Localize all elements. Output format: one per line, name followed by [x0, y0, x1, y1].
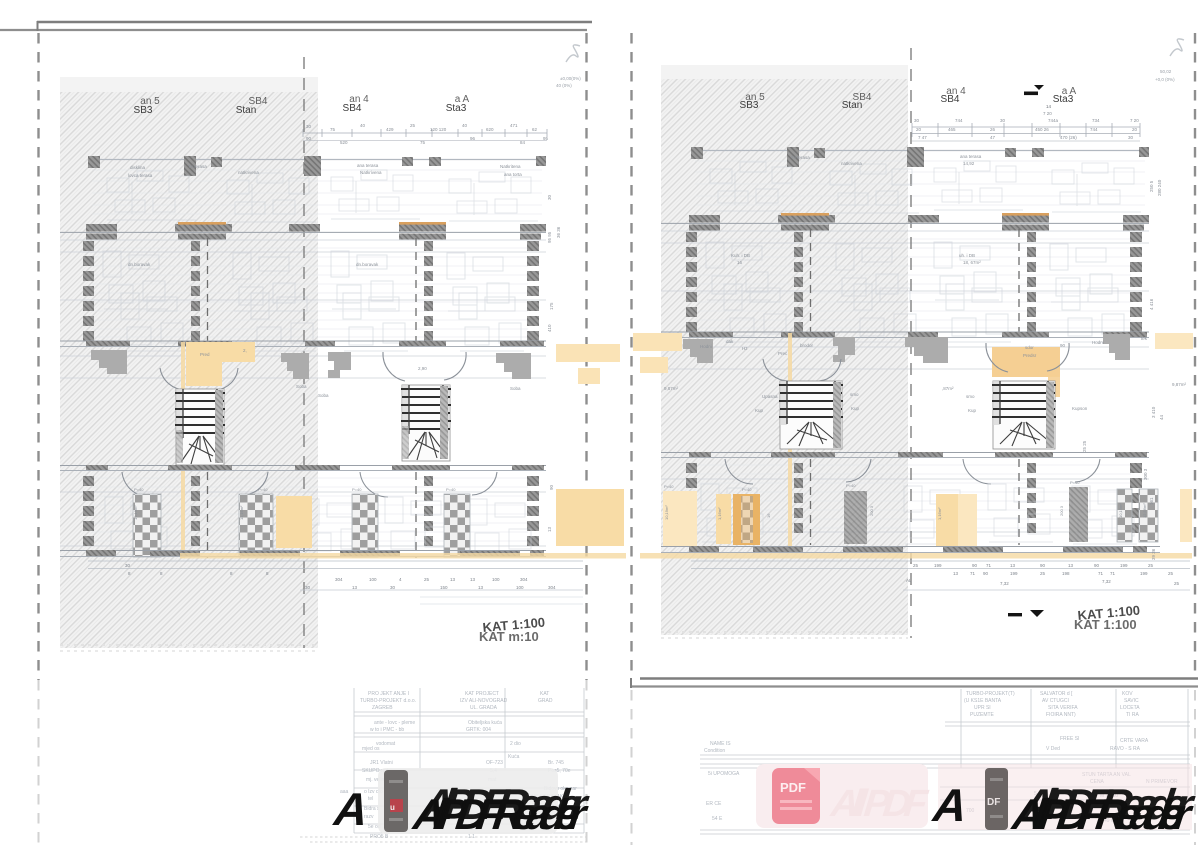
svg-text:200 3: 200 3: [1059, 505, 1064, 516]
svg-text:54 E: 54 E: [712, 816, 723, 822]
svg-text:A: A: [331, 783, 371, 835]
svg-text:25: 25: [424, 577, 430, 582]
svg-text:Natkritena: Natkritena: [500, 164, 521, 169]
svg-text:V Ded: V Ded: [1046, 746, 1060, 752]
svg-text:GRAD: GRAD: [538, 698, 553, 704]
svg-text:620: 620: [486, 127, 494, 132]
svg-text:All PDF Reader: All PDF Reader: [419, 781, 592, 829]
svg-text:natkrivena: natkrivena: [238, 170, 259, 175]
svg-text:95 95: 95 95: [547, 231, 552, 243]
svg-text:Condition: Condition: [704, 748, 725, 754]
svg-text:62: 62: [532, 127, 538, 132]
svg-text:NAME IS: NAME IS: [710, 741, 731, 747]
svg-text:71: 71: [1098, 571, 1104, 576]
svg-text:25: 25: [410, 123, 416, 128]
svg-text:20: 20: [916, 127, 922, 132]
svg-text:Kupson: Kupson: [1072, 406, 1088, 411]
svg-text:(U KS1E BANTA: (U KS1E BANTA: [964, 698, 1002, 704]
svg-text:Soba: Soba: [510, 386, 521, 391]
svg-text:120 120: 120 120: [430, 127, 447, 132]
svg-text:50,02: 50,02: [1160, 69, 1172, 74]
svg-text:dn.boravak: dn.boravak: [128, 262, 151, 267]
svg-text:429: 429: [386, 127, 394, 132]
svg-text:90: 90: [972, 563, 978, 568]
svg-text:Tv terasa: Tv terasa: [791, 155, 810, 160]
svg-text:PRO5 B: PRO5 B: [370, 834, 389, 840]
svg-text:Upasna: Upasna: [762, 394, 778, 399]
svg-text:dn.boravak: dn.boravak: [356, 262, 379, 267]
svg-text:450 26: 450 26: [1035, 127, 1049, 132]
svg-text:25: 25: [913, 563, 919, 568]
svg-text:sdor: sdor: [1025, 345, 1034, 350]
svg-text:71: 71: [1110, 571, 1116, 576]
svg-text:Kup: Kup: [851, 406, 860, 411]
svg-text:disklina: disklina: [130, 165, 146, 170]
svg-text:95: 95: [543, 136, 549, 141]
svg-text:75: 75: [420, 140, 426, 145]
svg-text:44: 44: [1159, 414, 1164, 420]
svg-text:25: 25: [1174, 581, 1180, 586]
svg-text:ana terasa: ana terasa: [960, 154, 982, 159]
svg-text:SAVIC: SAVIC: [1124, 698, 1139, 704]
svg-text:20: 20: [1132, 127, 1138, 132]
svg-text:an 4: an 4: [349, 94, 369, 105]
svg-text:an 5: an 5: [745, 92, 765, 103]
svg-text:KAT: KAT: [540, 691, 549, 697]
svg-text:100: 100: [516, 585, 524, 590]
svg-text:150: 150: [440, 585, 448, 590]
svg-text:A: A: [930, 779, 970, 831]
svg-text:P=40: P=40: [1070, 480, 1080, 485]
svg-text:lovca terasa: lovca terasa: [128, 173, 153, 178]
svg-text:Prec: Prec: [778, 351, 788, 356]
svg-text:AV CTUGCI: AV CTUGCI: [1042, 698, 1069, 704]
svg-text:84: 84: [520, 140, 526, 145]
svg-text:16: 16: [766, 513, 771, 518]
svg-text:FREE SI: FREE SI: [1060, 736, 1079, 742]
svg-text:PUZEMTE: PUZEMTE: [970, 712, 995, 718]
svg-text:40: 40: [462, 123, 468, 128]
svg-text:13: 13: [450, 577, 456, 582]
svg-text:KAT m:10: KAT m:10: [479, 629, 539, 644]
svg-text:RAVO - S RA: RAVO - S RA: [1110, 746, 1141, 752]
svg-text:u: u: [390, 803, 395, 812]
svg-text:40 (0%): 40 (0%): [556, 83, 572, 88]
svg-text:30: 30: [914, 118, 920, 123]
svg-text:Hodni: Hodni: [700, 344, 712, 349]
svg-text:PRO JEKT ANJE I: PRO JEKT ANJE I: [368, 691, 409, 697]
svg-text:520: 520: [340, 140, 348, 145]
svg-text:71: 71: [986, 563, 992, 568]
svg-text:744: 744: [955, 118, 963, 123]
svg-text:w to i PMC - bb: w to i PMC - bb: [370, 727, 404, 733]
svg-text:mjed os: mjed os: [362, 746, 380, 752]
svg-text:P=40: P=40: [664, 484, 674, 489]
svg-text:25: 25: [1148, 563, 1154, 568]
svg-text:GRTK: 004: GRTK: 004: [466, 727, 491, 733]
svg-text:7 20: 7 20: [1043, 111, 1052, 116]
svg-text:304: 304: [335, 577, 343, 582]
svg-text:tek: tek: [1141, 336, 1148, 341]
svg-text:30: 30: [306, 124, 312, 129]
svg-text:5i UPOMOGA: 5i UPOMOGA: [708, 771, 740, 777]
svg-text:P=40: P=40: [134, 487, 144, 492]
svg-text:7 47: 7 47: [918, 135, 927, 140]
svg-text:36 36: 36 36: [556, 226, 561, 238]
svg-text:Kuća: Kuća: [508, 754, 520, 760]
svg-text:Pred: Pred: [200, 352, 210, 357]
svg-text:14: 14: [1046, 104, 1052, 109]
svg-text:P=40: P=40: [446, 487, 456, 492]
svg-text:KAT PROJECT: KAT PROJECT: [465, 691, 499, 697]
svg-text:TURBO-PROJEKT(T): TURBO-PROJEKT(T): [966, 691, 1015, 697]
svg-text:P=40: P=40: [742, 487, 752, 492]
svg-text:brodor: brodor: [800, 343, 814, 348]
svg-text:744a: 744a: [1048, 118, 1059, 123]
svg-text:199: 199: [934, 563, 942, 568]
svg-text:PDF: PDF: [780, 780, 806, 795]
svg-text:KAT 1:100: KAT 1:100: [1074, 617, 1137, 632]
svg-text:9,87m²: 9,87m²: [664, 386, 679, 391]
svg-text:90: 90: [1094, 563, 1100, 568]
svg-text:UL. GRADA: UL. GRADA: [470, 705, 498, 711]
svg-text:175: 175: [549, 302, 554, 310]
svg-text:11,16m²: 11,16m²: [239, 505, 244, 520]
svg-text:13: 13: [547, 526, 552, 532]
svg-text:uh. i DB: uh. i DB: [959, 253, 975, 258]
svg-text:199: 199: [1140, 571, 1148, 576]
svg-text:280 240: 280 240: [1157, 179, 1162, 196]
svg-text:1,16m²: 1,16m²: [937, 507, 942, 520]
svg-text:13: 13: [1010, 563, 1016, 568]
svg-text:Soba: Soba: [296, 384, 307, 389]
svg-text:ante - lovc - pleme: ante - lovc - pleme: [374, 720, 415, 726]
svg-text:TI RA: TI RA: [1126, 712, 1139, 718]
svg-text:100: 100: [369, 577, 377, 582]
svg-text:90: 90: [306, 136, 312, 141]
svg-text:ana torta: ana torta: [504, 172, 522, 177]
svg-text:ER CE: ER CE: [706, 801, 722, 807]
svg-text:30: 30: [547, 194, 552, 200]
svg-text:30: 30: [390, 585, 396, 590]
svg-text:18, 67m²: 18, 67m²: [963, 260, 981, 265]
svg-text:12,56m²: 12,56m²: [1142, 503, 1147, 518]
svg-text:199: 199: [1010, 571, 1018, 576]
svg-text:200 3: 200 3: [869, 505, 874, 516]
svg-text:744: 744: [1090, 127, 1098, 132]
svg-text:75: 75: [330, 127, 336, 132]
svg-text:UPR SI: UPR SI: [974, 705, 991, 711]
svg-text:734: 734: [1092, 118, 1100, 123]
svg-text:Soba: Soba: [318, 393, 329, 398]
svg-text:,87m²: ,87m²: [942, 386, 954, 391]
svg-text:a A: a A: [455, 94, 470, 105]
svg-text:+0,0 (0%): +0,0 (0%): [1155, 77, 1175, 82]
svg-text:SITA VERIFA: SITA VERIFA: [1048, 705, 1078, 711]
svg-text:198: 198: [1062, 571, 1070, 576]
svg-text:Natkrivena: Natkrivena: [360, 170, 382, 175]
svg-text:natkrivena: natkrivena: [841, 161, 862, 166]
svg-text:TURBO-PROJEKT d.o.o.: TURBO-PROJEKT d.o.o.: [360, 698, 416, 704]
svg-text:471: 471: [510, 123, 518, 128]
svg-text:13: 13: [352, 585, 358, 590]
svg-text:30: 30: [1000, 118, 1006, 123]
svg-text:470 (26): 470 (26): [1060, 135, 1077, 140]
svg-text:IZV ALI-NOVOGRAD: IZV ALI-NOVOGRAD: [460, 698, 508, 704]
svg-text:30: 30: [305, 585, 311, 590]
svg-text:Kuh. i DB: Kuh. i DB: [731, 253, 750, 258]
svg-text:P=40: P=40: [352, 487, 362, 492]
svg-text:13: 13: [953, 571, 959, 576]
svg-text:7 20: 7 20: [1130, 118, 1139, 123]
svg-text:smo: smo: [850, 392, 859, 397]
svg-text:10,19m²: 10,19m²: [1118, 503, 1123, 518]
svg-text:KOV: KOV: [1122, 691, 1133, 697]
svg-text:25: 25: [1040, 571, 1046, 576]
svg-text:9,87m²: 9,87m²: [1172, 382, 1187, 387]
svg-text:47: 47: [990, 135, 996, 140]
svg-text:96: 96: [470, 136, 476, 141]
svg-text:3 410: 3 410: [1151, 406, 1156, 418]
svg-text:AL: AL: [906, 578, 912, 583]
svg-text:14,92: 14,92: [963, 161, 975, 166]
svg-text:25 25: 25 25: [1082, 440, 1087, 452]
svg-text:100: 100: [492, 577, 500, 582]
svg-text:Tv terasa: Tv terasa: [188, 164, 207, 169]
svg-text:Predsr: Predsr: [1023, 353, 1037, 358]
svg-text:a A: a A: [1062, 86, 1077, 97]
svg-text:7,32: 7,32: [1102, 579, 1111, 584]
svg-text:dak: dak: [726, 339, 734, 344]
svg-text:16: 16: [737, 260, 743, 265]
svg-text:All PDF Reader: All PDF Reader: [1019, 781, 1198, 829]
svg-text:250 5: 250 5: [1149, 180, 1154, 192]
svg-text:1,16m²: 1,16m²: [717, 507, 722, 520]
svg-text:10,19m²: 10,19m²: [133, 505, 138, 520]
svg-text:Kup: Kup: [968, 408, 977, 413]
svg-text:71: 71: [970, 571, 976, 576]
svg-text:P=40: P=40: [846, 483, 856, 488]
svg-text:Br. 745: Br. 745: [548, 760, 564, 766]
svg-text:25: 25: [1168, 571, 1174, 576]
svg-text:smo: smo: [966, 394, 975, 399]
svg-text:26: 26: [990, 127, 996, 132]
svg-text:Obiteljska kuća: Obiteljska kuća: [468, 720, 502, 726]
svg-text:7,32: 7,32: [1000, 581, 1009, 586]
svg-text:90: 90: [1060, 343, 1066, 348]
svg-text:P=40: P=40: [258, 487, 268, 492]
svg-text:90: 90: [983, 571, 989, 576]
svg-text:SB4: SB4: [853, 92, 872, 103]
svg-text:13: 13: [1068, 563, 1074, 568]
svg-text:an 5: an 5: [140, 96, 160, 107]
svg-text:SB4: SB4: [249, 96, 268, 107]
svg-text:LOCETA: LOCETA: [1120, 705, 1140, 711]
svg-text:300 3: 300 3: [1143, 468, 1148, 480]
svg-text:304: 304: [548, 585, 556, 590]
svg-text:Kup: Kup: [755, 408, 764, 413]
svg-text:ZAGREB: ZAGREB: [372, 705, 393, 711]
svg-text:FIOIRA NNT): FIOIRA NNT): [1046, 712, 1076, 718]
svg-text:SALVATOR d [: SALVATOR d [: [1040, 691, 1073, 697]
svg-text:2,: 2,: [243, 348, 247, 353]
svg-text:Hodni: Hodni: [1092, 340, 1104, 345]
svg-text:30: 30: [125, 563, 131, 568]
svg-text:2,90: 2,90: [418, 366, 427, 371]
svg-text:90: 90: [549, 484, 554, 490]
svg-text:ana terasa: ana terasa: [357, 163, 379, 168]
svg-text:161: 161: [1149, 497, 1154, 505]
svg-text:39 36: 39 36: [1151, 548, 1156, 560]
svg-text:40: 40: [360, 123, 366, 128]
svg-text:465: 465: [948, 127, 956, 132]
svg-text:±0,00(0%): ±0,00(0%): [560, 76, 581, 81]
svg-text:CRTE VARA: CRTE VARA: [1120, 738, 1149, 744]
svg-text:10,19m²: 10,19m²: [664, 505, 669, 520]
svg-text:304: 304: [520, 577, 528, 582]
svg-text:199: 199: [1120, 563, 1128, 568]
svg-text:JR1 Vlatni: JR1 Vlatni: [370, 760, 393, 766]
svg-text:13: 13: [478, 585, 484, 590]
svg-text:90: 90: [1040, 563, 1046, 568]
svg-text:30: 30: [1128, 135, 1134, 140]
svg-text:13: 13: [470, 577, 476, 582]
svg-text:OF-723: OF-723: [486, 760, 503, 766]
svg-text:Hz: Hz: [742, 346, 748, 351]
svg-text:2 dio: 2 dio: [510, 741, 521, 747]
svg-text:DF: DF: [987, 797, 1000, 808]
svg-text:an 4: an 4: [946, 86, 966, 97]
svg-text:All PDF: All PDF: [828, 783, 931, 825]
svg-text:410: 410: [547, 324, 552, 332]
svg-text:4 416: 4 416: [1149, 298, 1154, 310]
